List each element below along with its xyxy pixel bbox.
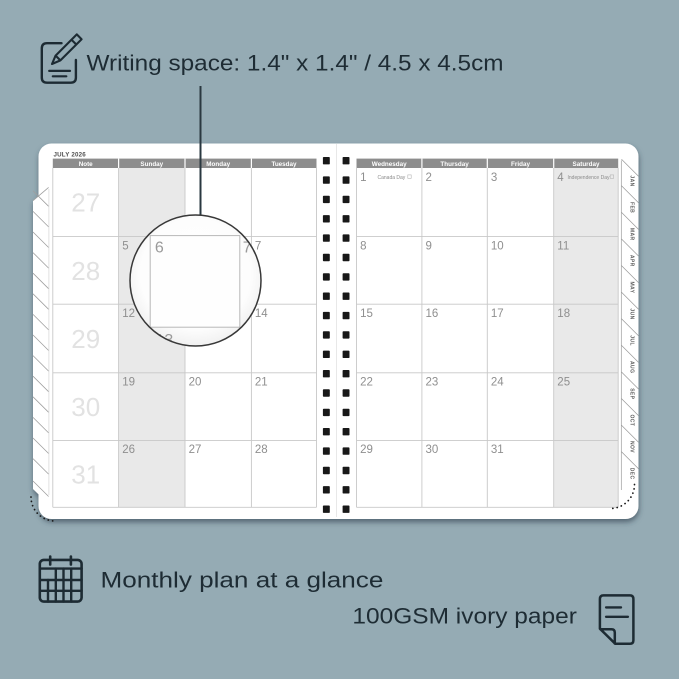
- svg-text:28: 28: [255, 444, 268, 456]
- svg-text:9: 9: [426, 240, 432, 252]
- svg-text:15: 15: [360, 308, 373, 320]
- svg-text:21: 21: [255, 377, 268, 389]
- svg-text:DEC: DEC: [629, 468, 635, 480]
- svg-text:Friday: Friday: [511, 161, 530, 168]
- svg-text:31: 31: [491, 444, 504, 456]
- svg-text:3: 3: [491, 172, 497, 184]
- svg-text:22: 22: [360, 377, 373, 389]
- svg-text:20: 20: [189, 377, 202, 389]
- svg-text:27: 27: [189, 444, 202, 456]
- svg-text:18: 18: [557, 308, 570, 320]
- svg-text:AUG: AUG: [629, 361, 635, 373]
- svg-text:8: 8: [360, 240, 366, 252]
- svg-text:JUN: JUN: [629, 308, 635, 319]
- svg-text:30: 30: [426, 444, 439, 456]
- svg-text:Writing space: 1.4" x 1.4" / 4: Writing space: 1.4" x 1.4" / 4.5 x 4.5cm: [87, 50, 504, 75]
- svg-text:4: 4: [557, 172, 564, 184]
- svg-text:JUL: JUL: [629, 335, 635, 346]
- svg-text:MAY: MAY: [629, 281, 635, 293]
- svg-text:7: 7: [255, 240, 261, 252]
- svg-text:16: 16: [426, 308, 439, 320]
- svg-text:Monthly plan at a glance: Monthly plan at a glance: [101, 568, 384, 593]
- svg-text:25: 25: [557, 377, 570, 389]
- svg-text:29: 29: [360, 444, 373, 456]
- svg-text:14: 14: [255, 308, 268, 320]
- svg-text:31: 31: [71, 459, 100, 489]
- svg-text:5: 5: [122, 240, 128, 252]
- svg-text:2: 2: [426, 172, 432, 184]
- svg-text:17: 17: [491, 308, 504, 320]
- svg-text:10: 10: [491, 240, 504, 252]
- svg-text:MAR: MAR: [629, 228, 635, 241]
- svg-text:23: 23: [426, 377, 439, 389]
- svg-text:27: 27: [71, 188, 100, 218]
- svg-text:SEP: SEP: [629, 388, 635, 399]
- svg-text:JAN: JAN: [629, 175, 635, 186]
- svg-text:Note: Note: [79, 161, 93, 168]
- svg-text:APR: APR: [629, 255, 635, 267]
- svg-text:FEB: FEB: [629, 202, 635, 213]
- svg-text:24: 24: [491, 377, 504, 389]
- svg-text:Tuesday: Tuesday: [271, 161, 297, 168]
- svg-text:Canada Day: Canada Day: [378, 175, 406, 181]
- svg-text:6: 6: [155, 240, 164, 257]
- svg-text:12: 12: [122, 308, 135, 320]
- svg-text:JULY 2026: JULY 2026: [54, 152, 87, 159]
- svg-text:100GSM ivory paper: 100GSM ivory paper: [352, 604, 577, 629]
- svg-text:11: 11: [557, 240, 569, 252]
- svg-text:Saturday: Saturday: [573, 161, 600, 168]
- svg-text:Independence Day: Independence Day: [568, 175, 610, 181]
- svg-text:Sunday: Sunday: [140, 161, 163, 168]
- svg-text:28: 28: [71, 256, 100, 286]
- svg-text:1: 1: [360, 172, 366, 184]
- svg-text:26: 26: [122, 444, 135, 456]
- svg-text:29: 29: [71, 324, 100, 354]
- svg-text:NOV: NOV: [629, 441, 635, 453]
- svg-text:Wednesday: Wednesday: [372, 161, 407, 168]
- svg-text:OCT: OCT: [629, 415, 635, 427]
- svg-text:19: 19: [122, 377, 135, 389]
- svg-text:Thursday: Thursday: [440, 161, 469, 168]
- svg-text:30: 30: [71, 392, 100, 422]
- svg-text:Monday: Monday: [206, 161, 230, 168]
